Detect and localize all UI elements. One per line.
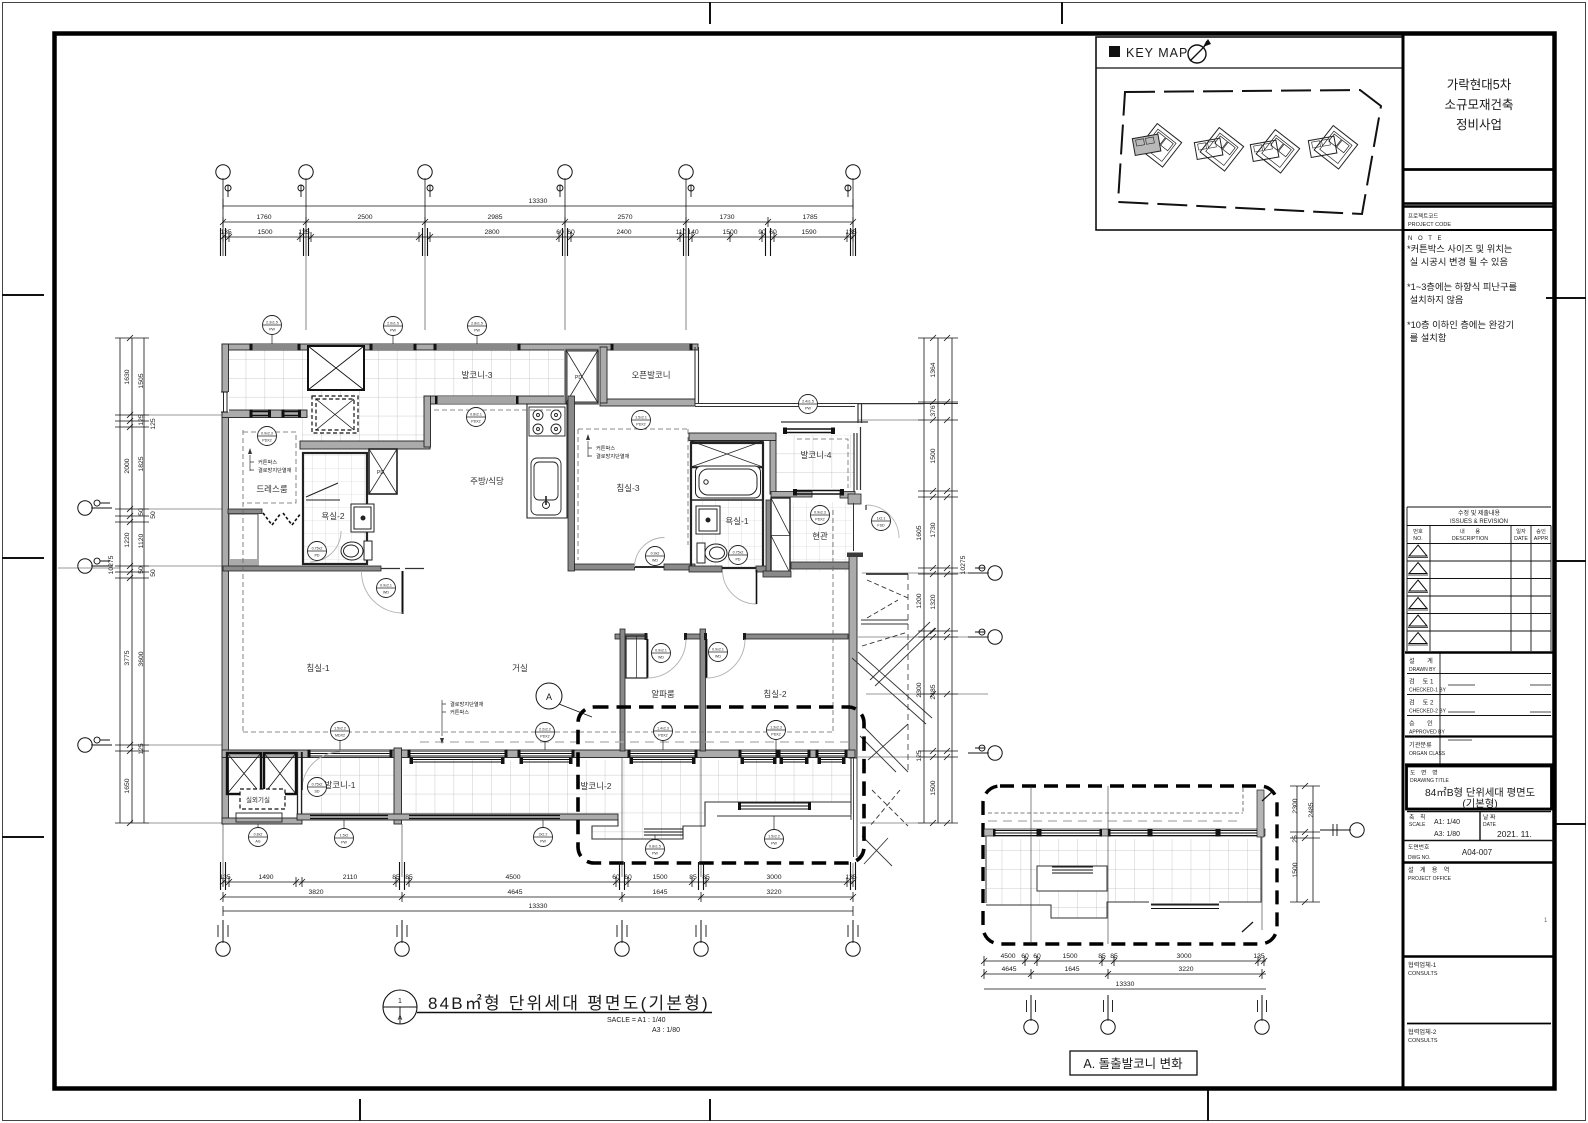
svg-text:0.9x2.1: 0.9x2.1 [380, 584, 392, 588]
svg-text:1220: 1220 [124, 532, 131, 547]
svg-text:PDX2: PDX2 [815, 518, 824, 522]
svg-text:실외기실: 실외기실 [246, 795, 270, 804]
svg-text:결로방지단열재: 결로방지단열재 [258, 466, 292, 474]
svg-text:A1: 1/40: A1: 1/40 [1434, 819, 1460, 826]
svg-text:1200: 1200 [916, 593, 923, 608]
svg-text:2000: 2000 [124, 458, 131, 473]
svg-text:승인: 승인 [1536, 528, 1546, 535]
svg-text:DRAWN BY: DRAWN BY [1409, 667, 1436, 673]
svg-text:25: 25 [1292, 835, 1299, 843]
svg-text:욕실-1: 욕실-1 [725, 516, 748, 526]
svg-text:1500: 1500 [930, 780, 937, 795]
svg-text:50: 50 [150, 569, 157, 577]
svg-text:1785: 1785 [802, 214, 817, 221]
svg-text:침실-1: 침실-1 [306, 663, 329, 673]
svg-text:3220: 3220 [766, 889, 781, 896]
svg-text:0.8x2: 0.8x2 [254, 833, 263, 837]
svg-text:도 면 명: 도 면 명 [1410, 769, 1438, 777]
svg-text:오픈발코니: 오픈발코니 [631, 370, 670, 380]
svg-text:PROJECT CODE: PROJECT CODE [1408, 222, 1451, 228]
svg-text:PDX2: PDX2 [658, 734, 667, 738]
svg-text:140: 140 [687, 229, 699, 236]
svg-text:1825: 1825 [138, 456, 145, 471]
svg-text:1.5x2: 1.5x2 [340, 834, 349, 838]
svg-text:1730: 1730 [930, 522, 937, 537]
svg-text:125: 125 [138, 414, 145, 426]
svg-text:CHECKED-1 BY: CHECKED-1 BY [1409, 688, 1447, 694]
svg-text:84B㎡형 단위세대 평면도(기본형): 84B㎡형 단위세대 평면도(기본형) [428, 994, 710, 1013]
svg-text:2.0x1.5: 2.0x1.5 [387, 322, 399, 326]
svg-text:0.75x2: 0.75x2 [312, 547, 323, 551]
svg-text:PDX2: PDX2 [636, 423, 645, 427]
svg-text:WD: WD [383, 591, 389, 595]
svg-text:실 시공시 변경 될 수 있음: 실 시공시 변경 될 수 있음 [1407, 256, 1508, 267]
svg-text:A: A [546, 692, 552, 702]
svg-text:발코니-3: 발코니-3 [461, 370, 492, 380]
svg-text:A: A [398, 1015, 403, 1022]
svg-text:0.9x2.3: 0.9x2.3 [261, 432, 273, 436]
svg-text:CONSULTS: CONSULTS [1408, 1038, 1438, 1044]
svg-text:3220: 3220 [1178, 966, 1193, 973]
svg-text:0.75x2: 0.75x2 [733, 551, 744, 555]
svg-text:1590: 1590 [801, 229, 816, 236]
svg-text:DATE: DATE [1483, 822, 1497, 828]
svg-text:PW: PW [540, 840, 546, 844]
svg-text:PW: PW [269, 328, 275, 332]
svg-text:1630: 1630 [124, 369, 131, 384]
svg-text:APPR: APPR [1534, 536, 1549, 542]
svg-text:1.3x2.3: 1.3x2.3 [770, 726, 782, 730]
svg-text:2500: 2500 [357, 214, 372, 221]
svg-text:PD: PD [315, 554, 320, 558]
svg-text:A. 돌출발코니 변화: A. 돌출발코니 변화 [1083, 1057, 1183, 1071]
svg-text:WD: WD [652, 559, 658, 563]
svg-text:*10층 이하인 층에는 완강기: *10층 이하인 층에는 완강기 [1407, 320, 1514, 330]
svg-text:발코니-2: 발코니-2 [580, 781, 611, 791]
svg-text:거실: 거실 [512, 663, 528, 673]
svg-text:PW: PW [771, 842, 777, 846]
svg-text:13330: 13330 [1116, 981, 1135, 988]
svg-text:1120: 1120 [138, 533, 145, 548]
svg-text:커튼박스: 커튼박스 [596, 444, 615, 452]
svg-text:1605: 1605 [916, 525, 923, 540]
svg-text:주방/식당: 주방/식당 [470, 476, 504, 486]
svg-text:수정 및 제출내용: 수정 및 제출내용 [1458, 509, 1500, 517]
svg-text:1.5x2.2: 1.5x2.2 [334, 727, 346, 731]
svg-text:협력업체-1: 협력업체-1 [1408, 961, 1437, 969]
svg-text:정비사업: 정비사업 [1456, 118, 1502, 132]
svg-text:1645: 1645 [652, 889, 667, 896]
svg-text:1490: 1490 [258, 874, 273, 881]
svg-text:설 계 용 역: 설 계 용 역 [1408, 866, 1449, 874]
svg-text:발코니-1: 발코니-1 [324, 780, 355, 790]
svg-text:NO.: NO. [1413, 536, 1422, 542]
svg-text:0.9x2.3: 0.9x2.3 [814, 511, 826, 515]
svg-text:CHECKED-2 BY: CHECKED-2 BY [1409, 709, 1447, 715]
svg-text:PW: PW [390, 329, 396, 333]
svg-text:3600: 3600 [138, 651, 145, 666]
svg-text:검 토 2: 검 토 2 [1409, 700, 1434, 707]
svg-text:1500: 1500 [930, 448, 937, 463]
svg-text:알파룸: 알파룸 [651, 689, 675, 699]
svg-text:커튼박스: 커튼박스 [450, 708, 469, 716]
svg-text:발코니-4: 발코니-4 [800, 450, 831, 460]
svg-text:0.8x1.5: 0.8x1.5 [649, 845, 661, 849]
svg-text:2570: 2570 [617, 214, 632, 221]
svg-text:협력업체-2: 협력업체-2 [1408, 1028, 1437, 1036]
svg-text:2300: 2300 [916, 682, 923, 697]
svg-text:PDX2: PDX2 [771, 733, 780, 737]
svg-text:MDX2: MDX2 [335, 734, 345, 738]
svg-text:2300: 2300 [1292, 798, 1299, 813]
svg-text:85: 85 [689, 874, 697, 881]
svg-text:50: 50 [138, 566, 145, 574]
svg-text:APPROVED BY: APPROVED BY [1409, 730, 1446, 736]
svg-text:DATE: DATE [1514, 536, 1528, 542]
svg-text:4645: 4645 [507, 889, 522, 896]
svg-text:도면번호: 도면번호 [1408, 843, 1430, 851]
svg-text:0.9x2.1: 0.9x2.1 [712, 648, 724, 652]
svg-text:1500: 1500 [652, 874, 667, 881]
svg-text:N O T E: N O T E [1408, 236, 1443, 242]
svg-text:설 계: 설 계 [1409, 657, 1433, 665]
svg-text:1760: 1760 [256, 214, 271, 221]
svg-text:1500: 1500 [257, 229, 272, 236]
svg-text:PDX2: PDX2 [540, 735, 549, 739]
svg-text:0.8x2.1: 0.8x2.1 [470, 413, 482, 417]
svg-text:2485: 2485 [930, 684, 937, 699]
svg-text:WD: WD [715, 655, 721, 659]
svg-text:2.4x1.5: 2.4x1.5 [802, 400, 814, 404]
svg-text:135: 135 [220, 229, 232, 236]
svg-text:소규모재건축: 소규모재건축 [1444, 98, 1513, 112]
svg-text:84㎡B형 단위세대 평면도: 84㎡B형 단위세대 평면도 [1425, 786, 1535, 799]
svg-text:PD: PD [377, 470, 384, 476]
svg-text:2.2x2.2: 2.2x2.2 [539, 728, 551, 732]
svg-text:침실-3: 침실-3 [616, 483, 639, 493]
svg-text:1645: 1645 [1064, 966, 1079, 973]
svg-text:13330: 13330 [529, 903, 548, 910]
svg-text:1650: 1650 [124, 778, 131, 793]
svg-text:1730: 1730 [719, 214, 734, 221]
svg-text:승 인: 승 인 [1409, 721, 1433, 728]
svg-text:ISSUES & REVISION: ISSUES & REVISION [1450, 519, 1508, 525]
svg-text:FSD: FSD [877, 524, 885, 528]
svg-text:10275: 10275 [960, 555, 967, 574]
svg-text:1320: 1320 [930, 594, 937, 609]
svg-text:SCALE: SCALE [1409, 822, 1426, 828]
svg-text:기관분류: 기관분류 [1409, 741, 1432, 749]
svg-text:AG: AG [255, 840, 260, 844]
svg-text:커튼박스: 커튼박스 [258, 458, 277, 466]
svg-text:DRAWING TITLE: DRAWING TITLE [1410, 778, 1450, 784]
svg-text:3820: 3820 [308, 889, 323, 896]
svg-text:PDX2: PDX2 [471, 420, 480, 424]
svg-text:1500: 1500 [1292, 862, 1299, 877]
svg-text:110: 110 [676, 229, 687, 236]
svg-text:1500: 1500 [1062, 953, 1077, 960]
svg-text:*1~3층에는 하향식 피난구를: *1~3층에는 하향식 피난구를 [1407, 281, 1518, 292]
svg-text:DWG NO.: DWG NO. [1408, 855, 1431, 861]
svg-text:A3 : 1/80: A3 : 1/80 [652, 1027, 680, 1034]
svg-text:A3: 1/80: A3: 1/80 [1434, 831, 1460, 838]
svg-text:2021. 11.: 2021. 11. [1497, 829, 1532, 839]
svg-text:2110: 2110 [343, 874, 358, 881]
svg-text:욕실-2: 욕실-2 [321, 511, 344, 521]
svg-text:프로젝트코드: 프로젝트코드 [1408, 212, 1438, 220]
svg-text:날 짜: 날 짜 [1483, 813, 1496, 821]
svg-text:PD: PD [736, 558, 741, 562]
svg-text:3000: 3000 [766, 874, 781, 881]
svg-text:2.3x1.5: 2.3x1.5 [266, 321, 278, 325]
svg-text:PW: PW [474, 329, 480, 333]
svg-text:1: 1 [398, 998, 402, 1005]
svg-text:드레스룸: 드레스룸 [256, 484, 287, 494]
svg-text:A04-007: A04-007 [1462, 848, 1493, 857]
svg-text:1.5x2.2: 1.5x2.2 [768, 835, 780, 839]
svg-text:1505: 1505 [138, 373, 145, 388]
svg-text:0.75x2: 0.75x2 [312, 783, 323, 787]
svg-text:현관: 현관 [812, 531, 828, 541]
svg-text:1.4x2.3: 1.4x2.3 [657, 727, 669, 731]
svg-text:2985: 2985 [487, 214, 502, 221]
svg-text:1364: 1364 [930, 362, 937, 377]
svg-text:4500: 4500 [1000, 953, 1015, 960]
svg-text:PW: PW [805, 407, 811, 411]
svg-text:SD: SD [315, 790, 320, 794]
svg-text:검 토 1: 검 토 1 [1409, 679, 1434, 686]
svg-text:PW: PW [652, 852, 658, 856]
svg-text:SACLE = A1 : 1/40: SACLE = A1 : 1/40 [607, 1017, 666, 1024]
svg-text:50: 50 [150, 511, 157, 519]
svg-text:PD: PD [575, 375, 582, 381]
svg-text:가락현대5차: 가락현대5차 [1447, 78, 1512, 92]
svg-text:3x2.2: 3x2.2 [539, 833, 548, 837]
svg-text:125: 125 [916, 750, 923, 762]
svg-text:13330: 13330 [529, 198, 548, 205]
svg-text:일자: 일자 [1516, 527, 1526, 535]
svg-text:376: 376 [930, 405, 937, 417]
svg-text:3775: 3775 [124, 650, 131, 665]
svg-text:1x2.1: 1x2.1 [877, 517, 886, 521]
svg-text:침실-2: 침실-2 [763, 689, 786, 699]
svg-text:2485: 2485 [1308, 802, 1315, 817]
svg-text:1.5x2.1: 1.5x2.1 [635, 416, 647, 420]
svg-text:3000: 3000 [1176, 953, 1191, 960]
svg-text:2800: 2800 [484, 229, 499, 236]
svg-text:4500: 4500 [505, 874, 520, 881]
svg-text:4645: 4645 [1001, 966, 1016, 973]
svg-text:ORGAN CLASS: ORGAN CLASS [1409, 751, 1446, 757]
svg-text:PDX2: PDX2 [262, 439, 271, 443]
svg-text:(기본형): (기본형) [1462, 798, 1497, 810]
svg-text:125: 125 [150, 418, 157, 430]
svg-text:0.9x2: 0.9x2 [651, 552, 660, 556]
svg-text:KEY MAP: KEY MAP [1126, 46, 1188, 60]
svg-text:결로방지단열재: 결로방지단열재 [450, 700, 484, 708]
svg-text:CONSULTS: CONSULTS [1408, 971, 1438, 977]
svg-text:10275: 10275 [108, 555, 115, 574]
svg-text:*커튼박스 사이즈 및 위치는: *커튼박스 사이즈 및 위치는 [1407, 243, 1513, 254]
svg-text:결로방지단열재: 결로방지단열재 [596, 452, 630, 460]
svg-text:축 칙: 축 칙 [1409, 813, 1425, 821]
svg-text:PW: PW [341, 841, 347, 845]
svg-text:135: 135 [1253, 953, 1265, 960]
svg-text:WD: WD [658, 656, 664, 660]
svg-text:2400: 2400 [616, 229, 631, 236]
svg-text:설치하지 않음: 설치하지 않음 [1407, 294, 1464, 305]
svg-text:번호: 번호 [1413, 527, 1423, 535]
svg-text:내 용: 내 용 [1460, 527, 1480, 535]
svg-text:를 설치함: 를 설치함 [1407, 332, 1447, 343]
svg-text:PROJECT OFFICE: PROJECT OFFICE [1408, 876, 1452, 882]
svg-text:DESCRIPTION: DESCRIPTION [1452, 536, 1488, 542]
svg-text:2.8x1.5: 2.8x1.5 [471, 322, 483, 326]
svg-text:0.9x2.1: 0.9x2.1 [655, 649, 667, 653]
